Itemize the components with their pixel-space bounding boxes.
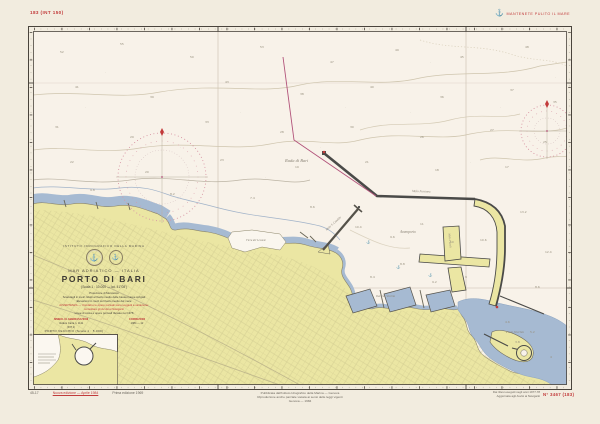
depth-sounding: 10.6 bbox=[480, 238, 487, 242]
nautical-chart-sheet: 5255505347494548413943384036373531293328… bbox=[0, 0, 600, 424]
depth-sounding: 43 bbox=[225, 80, 229, 84]
depth-sounding: 30 bbox=[350, 125, 354, 129]
depth-sounding: 18 bbox=[435, 168, 439, 172]
chart-scale: (Scala 1 : 10.000 — lat. 41°08′) bbox=[38, 285, 170, 289]
depth-sounding: 3.8 bbox=[515, 340, 520, 344]
slogan-text: MANTENETE PULITO IL MARE bbox=[507, 12, 570, 16]
depth-sounding: 23 bbox=[220, 158, 224, 162]
sea-label: Fiera del Levante bbox=[246, 239, 266, 242]
depth-sounding: · bbox=[180, 145, 181, 149]
chart-number-bottom-right: N° 3467 (183) bbox=[543, 392, 574, 397]
inset-map bbox=[31, 335, 118, 386]
bottom-left-notes: 45-17 Nuova edizione — Aprile 1984 Prima… bbox=[30, 391, 143, 395]
depth-sounding: 12.4 bbox=[545, 250, 552, 254]
depth-sounding: 8.6 bbox=[535, 285, 540, 289]
depth-sounding: 39 bbox=[150, 95, 154, 99]
sea-label: ⚓ bbox=[428, 273, 432, 277]
chart-title: PORTO DI BARI bbox=[38, 274, 170, 284]
corrections-column: CORREZIONI 1984 — 12 — bbox=[108, 318, 166, 329]
depth-sounding: 35 bbox=[553, 100, 557, 104]
nautical-chart-map bbox=[0, 0, 600, 424]
title-block: ISTITUTO IDROGRAFICO DELLA MARINA ⚓ ⚓ MA… bbox=[38, 244, 170, 329]
depth-sounding: 22 bbox=[70, 160, 74, 164]
chart-number-top-left: 183 (INT 150) bbox=[30, 10, 64, 15]
hydrographic-institute-seal-icon: ⚓ bbox=[86, 249, 103, 266]
symbols-column: SIMBOLI E ABBREVIAZIONI Vedere Carta n. … bbox=[42, 318, 100, 329]
mole-head-light bbox=[496, 306, 499, 309]
anchor-icon: ⚓ bbox=[495, 11, 504, 17]
depth-sounding: 37 bbox=[510, 88, 514, 92]
sea-label: Avamporto bbox=[400, 230, 416, 234]
sea-label: Darsena Vecchia bbox=[376, 295, 395, 298]
breakwater-light bbox=[323, 151, 326, 154]
depth-sounding: 48 bbox=[525, 45, 529, 49]
depth-sounding: 26 bbox=[420, 135, 424, 139]
depth-sounding: · bbox=[345, 105, 346, 109]
depth-sounding: · bbox=[105, 70, 106, 74]
depth-sounding: 19 bbox=[295, 165, 299, 169]
depth-sounding: 20 bbox=[145, 170, 149, 174]
depth-sounding: 9.2 bbox=[432, 280, 437, 284]
depth-sounding: 8.6 bbox=[310, 205, 315, 209]
depth-sounding: 5.2 bbox=[530, 330, 535, 334]
sea-label: ⚓ bbox=[366, 240, 370, 244]
depth-sounding: 4.6 bbox=[505, 320, 510, 324]
depth-sounding: 53 bbox=[260, 45, 264, 49]
depth-sounding: 41 bbox=[75, 85, 79, 89]
depth-sounding: 29 bbox=[130, 135, 134, 139]
depth-sounding: 36 bbox=[440, 95, 444, 99]
sea-label: ⚓ bbox=[396, 265, 400, 269]
official-seals: ⚓ ⚓ bbox=[38, 249, 170, 266]
depth-sounding: 27 bbox=[490, 128, 494, 132]
depth-sounding: · bbox=[320, 145, 321, 149]
sea-label: Rada di Bari bbox=[285, 158, 308, 163]
depth-sounding: · bbox=[410, 110, 411, 114]
depth-sounding: 33 bbox=[205, 120, 209, 124]
depth-sounding: 11 bbox=[420, 222, 424, 226]
depth-sounding: · bbox=[430, 60, 431, 64]
depth-sounding: · bbox=[555, 75, 556, 79]
depth-sounding: 7.4 bbox=[250, 196, 255, 200]
depth-sounding: 8.4 bbox=[370, 275, 375, 279]
depth-sounding: 9.8 bbox=[90, 188, 95, 192]
keep-sea-clean-slogan: ⚓ MANTENETE PULITO IL MARE bbox=[495, 11, 570, 17]
publisher-block: Pubblicata dall'Istituto Idrografico del… bbox=[180, 391, 420, 404]
agency-name: ISTITUTO IDROGRAFICO DELLA MARINA bbox=[38, 244, 170, 248]
depth-sounding: 10.4 bbox=[355, 225, 362, 229]
depth-sounding: 55 bbox=[120, 42, 124, 46]
depth-sounding: · bbox=[500, 105, 501, 109]
depth-sounding: 28 bbox=[280, 130, 284, 134]
depth-sounding: 40 bbox=[370, 85, 374, 89]
region-label: MAR ADRIATICO — ITALIA bbox=[38, 268, 170, 273]
sea-label: Molo Foraneo bbox=[412, 189, 431, 194]
depth-sounding: 47 bbox=[330, 60, 334, 64]
depth-sounding: 9.6 bbox=[390, 235, 395, 239]
navy-crest-icon: ⚓ bbox=[109, 250, 123, 265]
depth-sounding: · bbox=[85, 105, 86, 109]
depth-sounding: · bbox=[265, 175, 266, 179]
depth-sounding: 9 bbox=[465, 275, 467, 279]
depth-sounding: 13.2 bbox=[520, 210, 527, 214]
first-edition-note: Prima edizione 1969 bbox=[112, 391, 143, 395]
depth-sounding: 17 bbox=[505, 165, 509, 169]
depth-sounding: 8.2 bbox=[170, 192, 175, 196]
survey-note: Linee di costa e opere portuali rilevate… bbox=[38, 311, 170, 315]
survey-source-block: Dai rilievi eseguiti negli anni 1977-78 … bbox=[470, 391, 540, 399]
depth-sounding: 8.8 bbox=[400, 262, 405, 266]
edition-code: 45-17 bbox=[30, 391, 39, 395]
new-edition-note: Nuova edizione — Aprile 1984 bbox=[53, 391, 99, 395]
depth-sounding: 38 bbox=[300, 92, 304, 96]
depth-sounding: · bbox=[240, 110, 241, 114]
depth-sounding: 49 bbox=[395, 48, 399, 52]
depth-sounding: 4 bbox=[550, 355, 552, 359]
depth-sounding: 45 bbox=[460, 55, 464, 59]
sea-label: Porto Vecchio bbox=[506, 330, 524, 334]
inset-title: PORTO VECCHIO (Scala 1 : 5.000) bbox=[30, 329, 118, 333]
depth-sounding: · bbox=[470, 160, 471, 164]
depth-sounding: 52 bbox=[60, 50, 64, 54]
depth-sounding: 21 bbox=[365, 160, 369, 164]
depth-sounding: 31 bbox=[55, 125, 59, 129]
depth-sounding: 50 bbox=[190, 55, 194, 59]
depth-sounding: 25 bbox=[543, 140, 547, 144]
